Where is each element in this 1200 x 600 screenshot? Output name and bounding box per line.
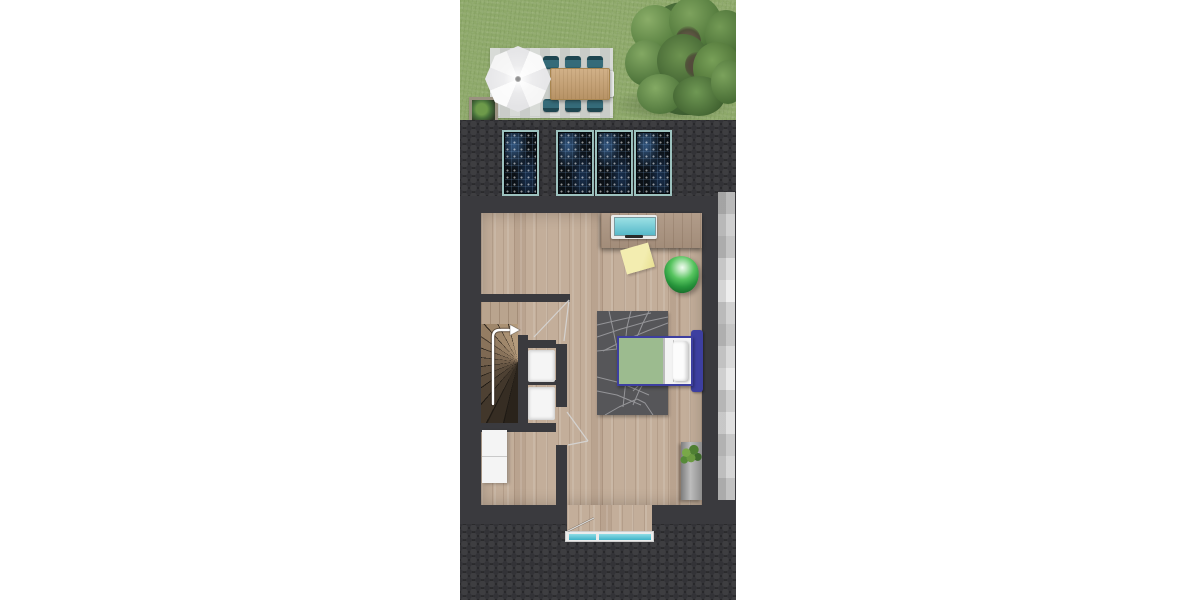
laptop — [611, 215, 657, 239]
winder-staircase — [481, 302, 518, 423]
window-pane — [599, 534, 651, 540]
patio-chair — [587, 99, 603, 112]
solar-panel — [556, 130, 594, 196]
patio-chair — [543, 99, 559, 112]
wall-partition-upper — [556, 344, 567, 407]
bay-floor — [567, 505, 652, 532]
laptop-hinge — [625, 235, 643, 238]
bed — [617, 336, 693, 386]
solar-panel — [502, 130, 539, 196]
white-fixture — [528, 387, 555, 420]
indoor-plant — [679, 443, 703, 467]
duvet-fold — [663, 338, 665, 384]
umbrella-pole — [515, 76, 521, 82]
solar-panel — [634, 130, 672, 196]
cabinet-divider — [482, 456, 507, 457]
dining-table — [550, 68, 610, 100]
entry-bay — [565, 505, 654, 543]
entry-window — [565, 531, 654, 542]
garden-lawn — [460, 0, 736, 120]
stair-landing — [481, 302, 518, 326]
wall-fixture-top — [518, 340, 556, 348]
entry-door-pane — [569, 534, 596, 540]
patio-chair — [565, 99, 581, 112]
side-roof-plane — [718, 192, 735, 500]
pillow — [673, 341, 688, 381]
garden-tree — [623, 0, 736, 119]
front-roof-shingles — [460, 120, 736, 196]
white-fixture — [528, 350, 555, 382]
storage-cabinet — [482, 430, 507, 483]
solar-panel — [595, 130, 633, 196]
laptop-screen — [614, 217, 656, 236]
wall-partition-lower — [556, 445, 567, 505]
stair-treads — [481, 324, 518, 423]
wall-stairwell-right — [518, 335, 528, 425]
wall-stairwell-top — [481, 294, 570, 302]
floorplan-illustration — [460, 0, 736, 600]
floorplan-level — [460, 196, 736, 524]
